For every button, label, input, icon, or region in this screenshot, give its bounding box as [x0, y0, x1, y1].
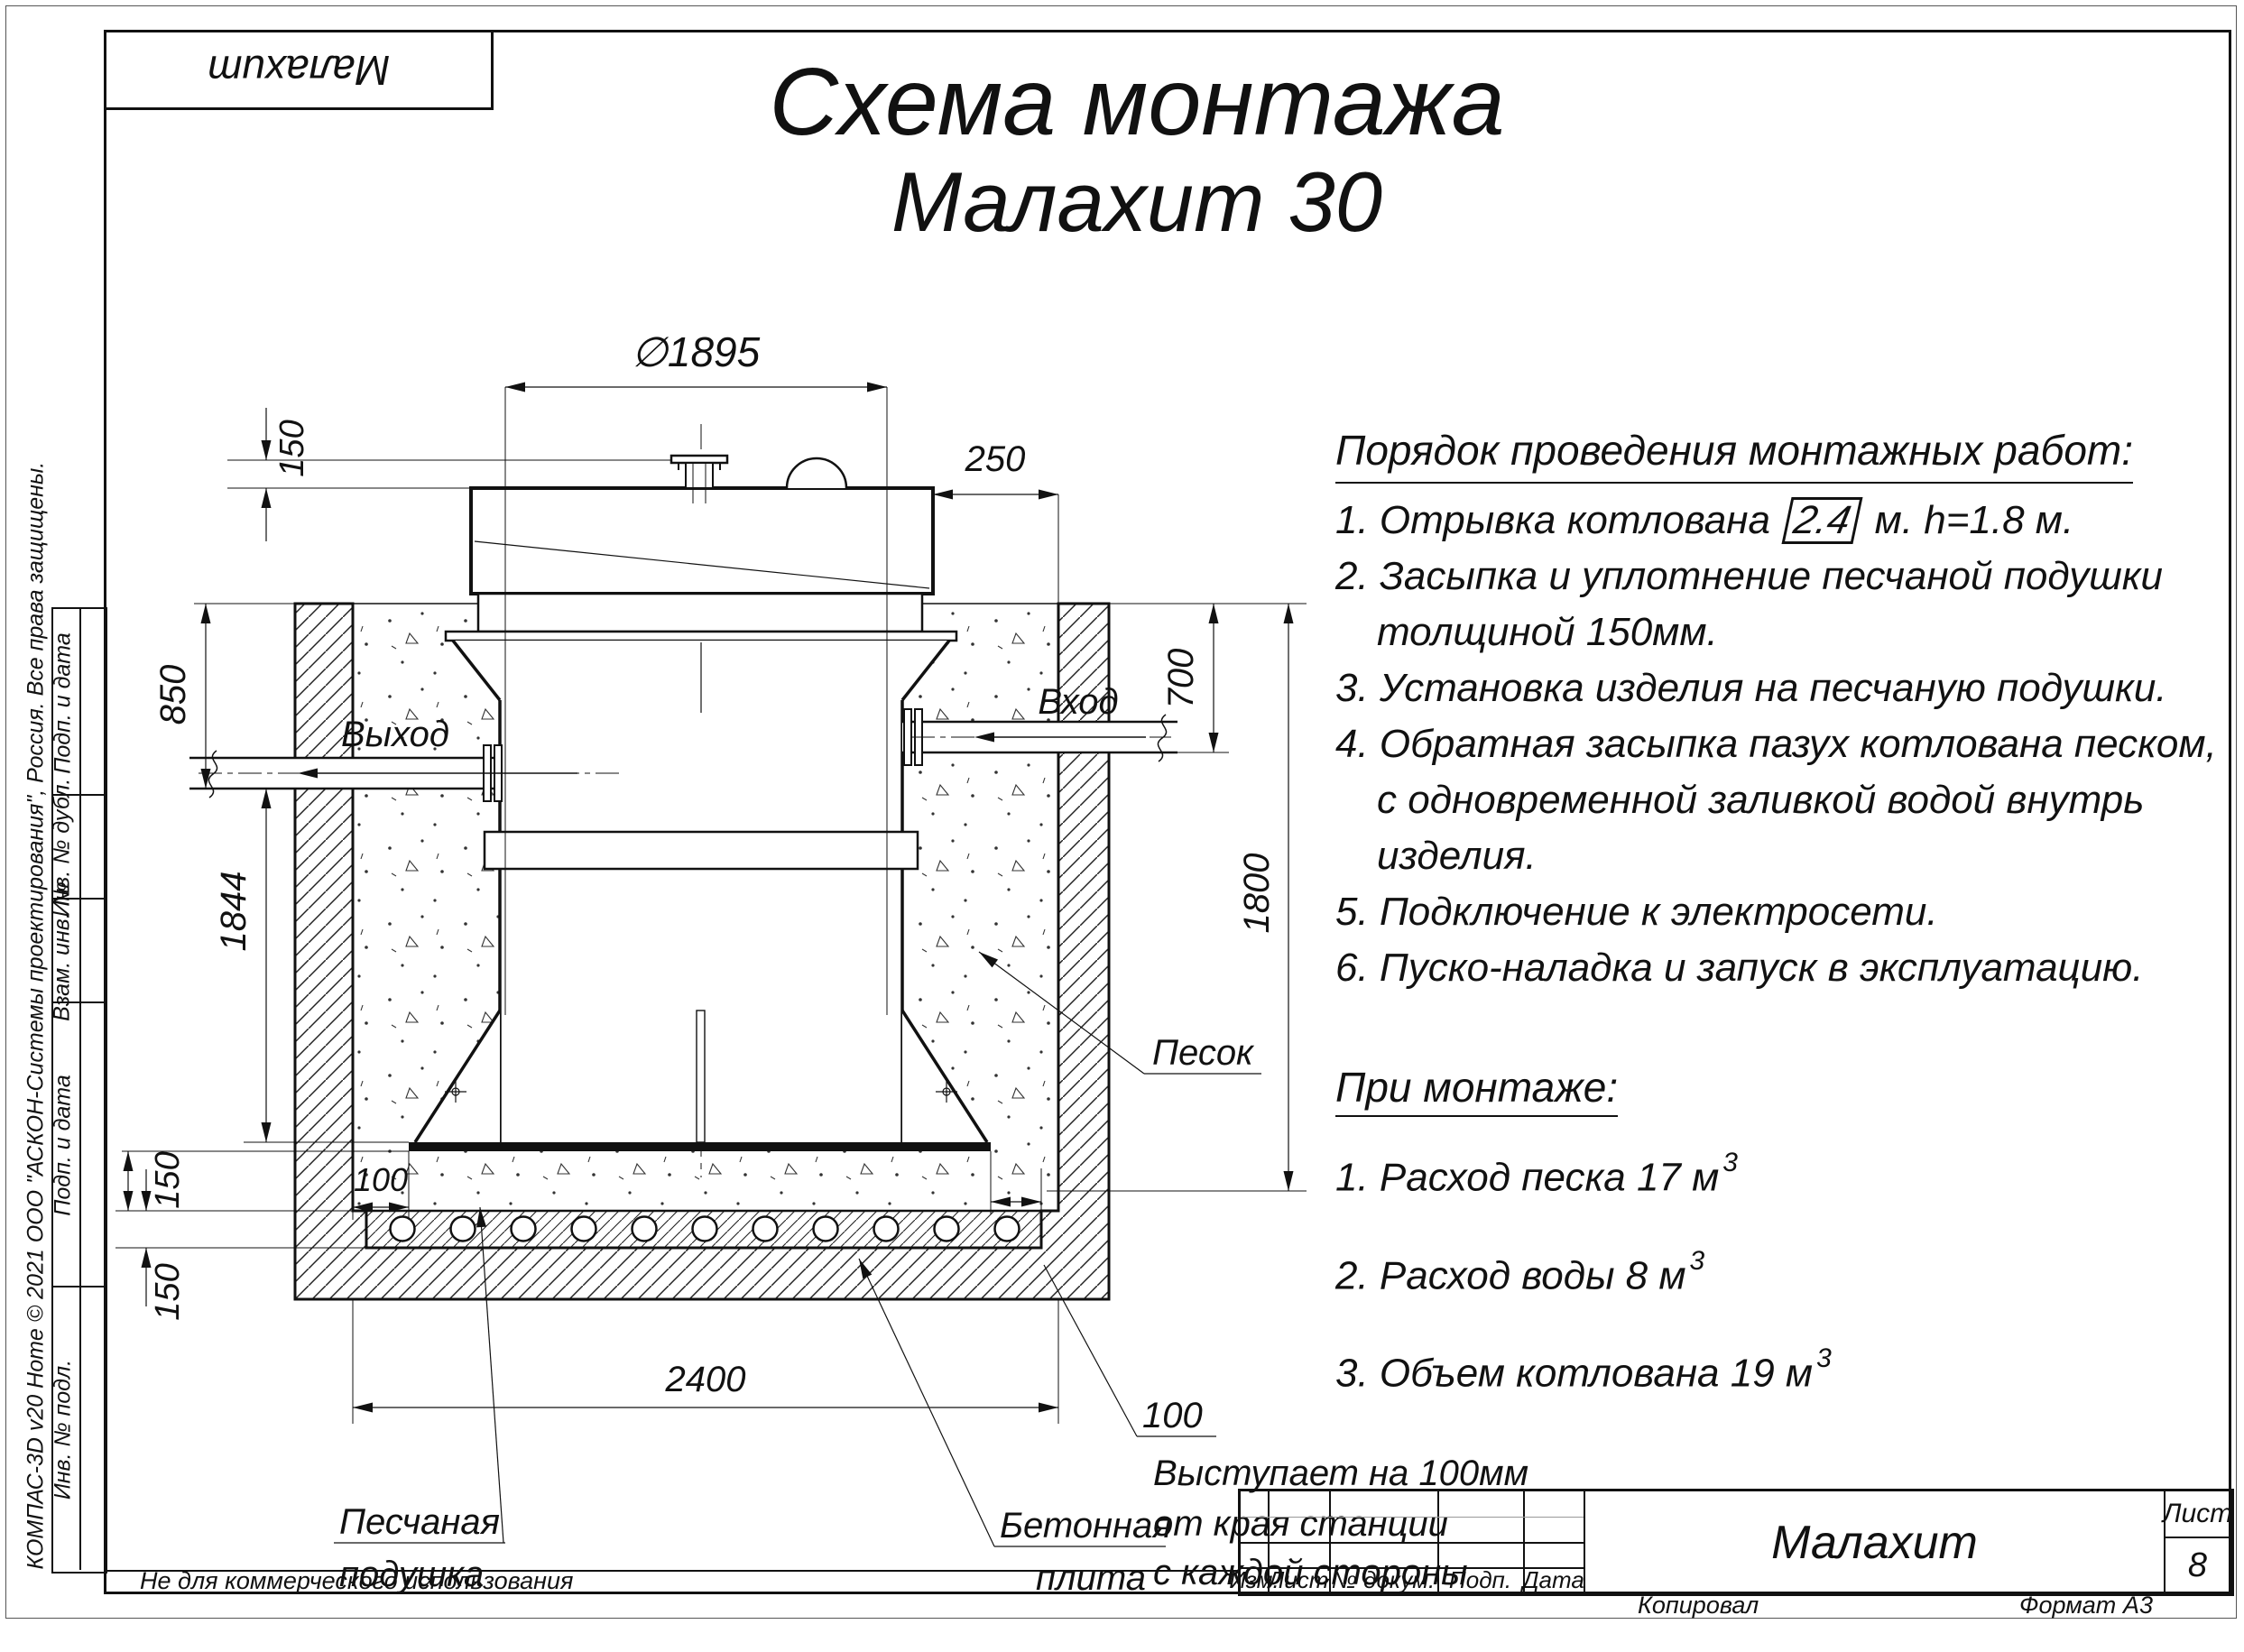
installation-drawing: ∅1895 250 150 850 1844 150 150 700 1800 …	[0, 0, 2244, 1652]
label-outlet: Выход	[341, 715, 449, 754]
format-value: А3	[2123, 1593, 2153, 1617]
stiffener-band	[485, 832, 918, 869]
stamp-col-docum: № докум.	[1329, 1567, 1437, 1593]
tank-bottom-plate	[409, 1142, 991, 1151]
stamp-sheet-label: Лист	[2164, 1491, 2231, 1537]
stamp-col-list: Лист	[1268, 1567, 1329, 1593]
concrete-slab	[366, 1211, 1041, 1248]
dim-overhang-right: 100	[1142, 1396, 1203, 1435]
dim-pad: 150	[149, 1151, 187, 1208]
stamp-col-podp: Подп.	[1437, 1567, 1523, 1593]
disclaimer-text: Не для коммерческого использования	[140, 1567, 573, 1595]
format-label: Формат	[2019, 1593, 2116, 1617]
copied-label: Копировал	[1638, 1593, 1759, 1617]
stamp-col-data: Дата	[1523, 1567, 1584, 1593]
label-pad-1: Песчаная	[339, 1502, 500, 1542]
dim-inlet-depth: 700	[1161, 649, 1201, 709]
tank-neck	[478, 594, 922, 632]
disclaimer-strip: Не для коммерческого использования	[104, 1570, 1238, 1591]
dim-body-height: 1844	[214, 872, 254, 952]
title-block: Изм. Лист № докум. Подп. Дата Малахит Ли…	[1238, 1489, 2234, 1596]
dim-edge-top: 250	[965, 439, 1026, 479]
cad-watermark: КОМПАС-3D v20 Home © 2021 ООО "АСКОН-Сис…	[23, 577, 50, 1570]
dim-pit-depth: 1800	[1237, 854, 1277, 934]
stamp-sheet-number: 8	[2164, 1538, 2231, 1593]
label-inlet: Вход	[1038, 682, 1118, 722]
dim-overhang-left: 100	[354, 1161, 408, 1198]
label-sand: Песок	[1152, 1033, 1255, 1073]
stamp-product: Малахит	[1585, 1491, 2164, 1593]
side-cell-3: Взам. инв. №	[50, 875, 76, 1029]
dim-diameter: ∅1895	[632, 328, 761, 375]
dim-pit-width: 2400	[665, 1360, 746, 1399]
lid-dome	[787, 458, 846, 488]
dim-slab: 150	[149, 1263, 187, 1320]
stamp-col-izm: Изм.	[1241, 1567, 1268, 1593]
side-cell-1: Подп. и дата	[51, 623, 77, 785]
dim-lid: 150	[273, 420, 311, 476]
tank-flange	[446, 632, 956, 641]
drawing-sheet: Малахит Схема монтажа Малахит 30 Порядок…	[0, 0, 2244, 1652]
label-slab-1: Бетонная	[1000, 1506, 1172, 1546]
side-cell-4: Подп. и дата	[51, 1042, 77, 1250]
tank-lid	[471, 488, 933, 594]
side-cell-5: Инв. № подл.	[51, 1326, 77, 1534]
note-line-1: Выступает на 100мм	[1153, 1454, 1528, 1493]
dim-outlet-depth: 850	[153, 665, 193, 725]
